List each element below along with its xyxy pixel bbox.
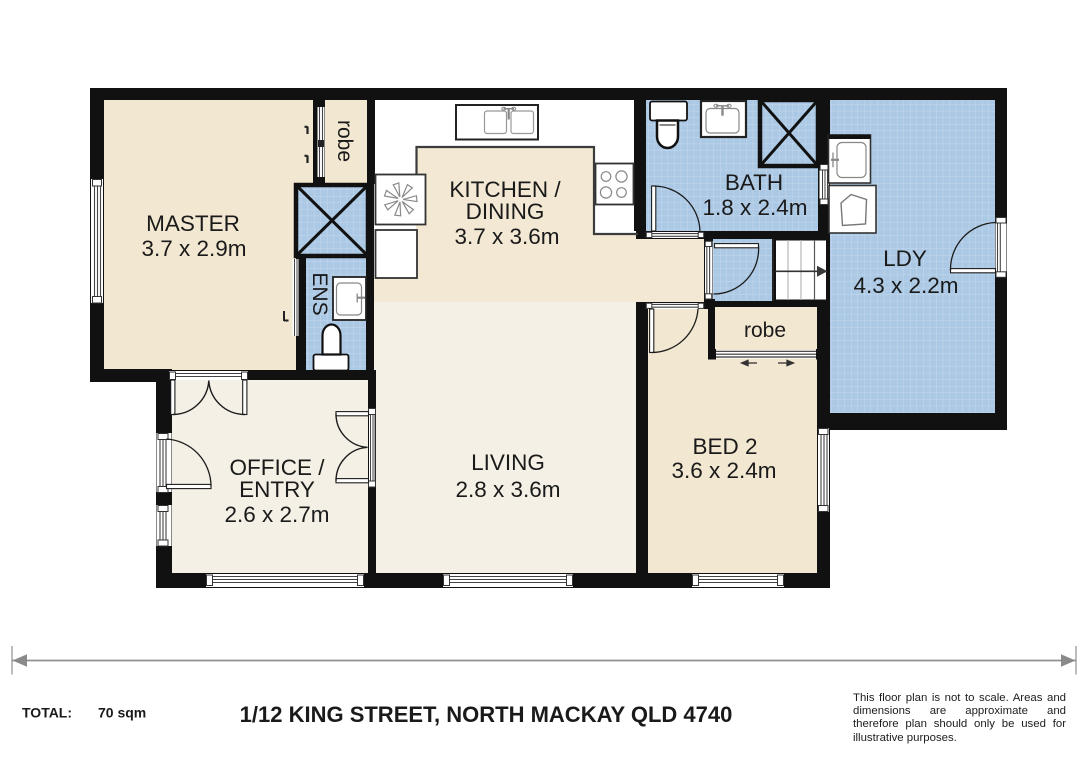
svg-text:TOTAL:: TOTAL: <box>22 705 72 721</box>
svg-text:3.7 x 3.6m: 3.7 x 3.6m <box>454 224 559 249</box>
svg-text:3.6 x 2.4m: 3.6 x 2.4m <box>671 458 776 483</box>
svg-text:LDY: LDY <box>883 246 927 271</box>
svg-text:MASTER: MASTER <box>146 211 240 236</box>
svg-text:BATH: BATH <box>725 170 783 195</box>
svg-text:4.3 x 2.2m: 4.3 x 2.2m <box>853 273 958 298</box>
svg-text:LIVING: LIVING <box>471 450 545 475</box>
svg-text:2.8 x 3.6m: 2.8 x 3.6m <box>455 477 560 502</box>
svg-text:robe: robe <box>744 319 786 342</box>
svg-text:robe: robe <box>333 120 356 162</box>
svg-text:BED 2: BED 2 <box>692 434 757 459</box>
svg-text:ENS: ENS <box>308 272 331 315</box>
svg-text:70 sqm: 70 sqm <box>98 705 146 721</box>
svg-text:1/12 KING STREET, NORTH MACKAY: 1/12 KING STREET, NORTH MACKAY QLD 4740 <box>240 702 733 727</box>
svg-text:DINING: DINING <box>466 199 545 224</box>
svg-text:1.8 x 2.4m: 1.8 x 2.4m <box>702 195 807 220</box>
svg-text:2.6 x 2.7m: 2.6 x 2.7m <box>224 502 329 527</box>
svg-text:3.7 x 2.9m: 3.7 x 2.9m <box>141 236 246 261</box>
svg-text:ENTRY: ENTRY <box>239 477 315 502</box>
